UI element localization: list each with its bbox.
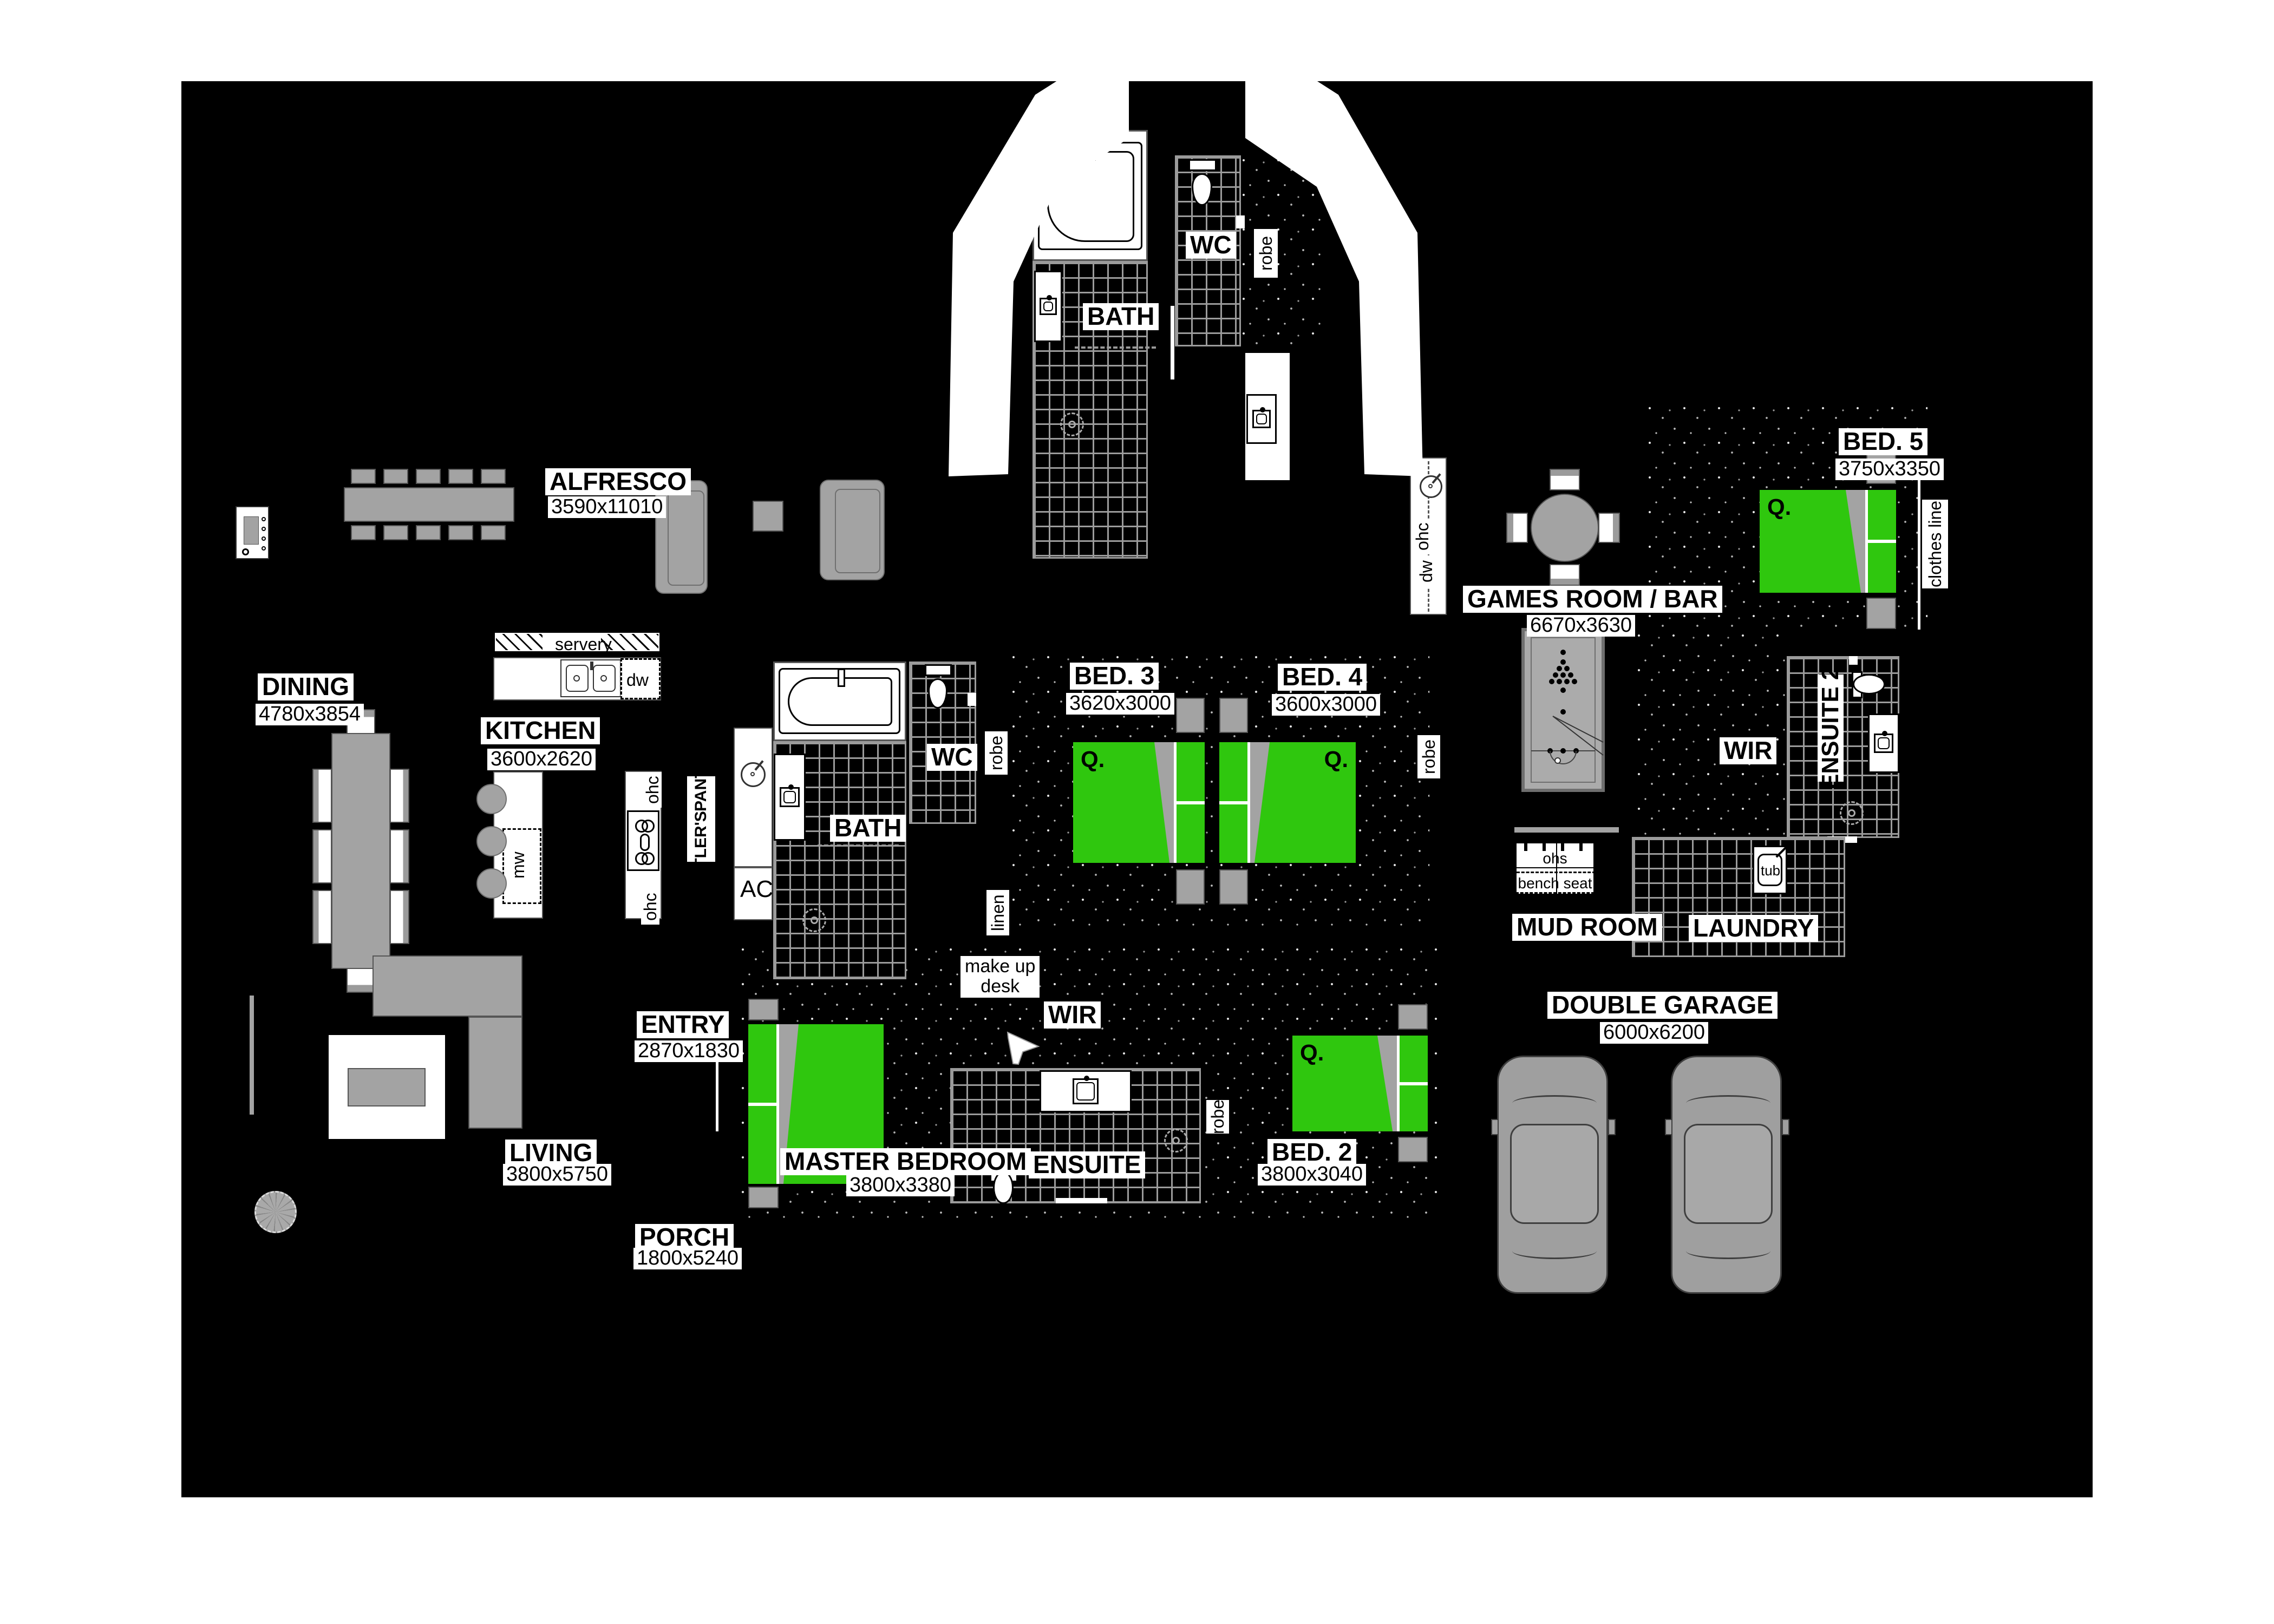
room-dims-entry: 2870x1830	[635, 1040, 743, 1062]
room-label-dining: DINING	[258, 673, 354, 700]
pool-table	[1523, 630, 1603, 790]
room-label-bed2: BED. 2	[1267, 1139, 1356, 1166]
vertical-label-robe: robe	[1206, 1100, 1229, 1134]
vertical-label-mw: mw	[509, 844, 527, 886]
room-dims-alfresco: 3590x11010	[548, 496, 666, 518]
vertical-label-clothes_line: clothes line	[1922, 500, 1948, 588]
vertical-label-linen: linen	[986, 890, 1009, 935]
butlers-line1: BUTLER'S	[692, 811, 711, 892]
make-up-desk-label: make updesk	[960, 956, 1040, 998]
butlers-line2: PANTRY	[692, 746, 711, 811]
vertical-label-robe: robe	[1417, 735, 1440, 778]
room-label-master: MASTER BEDROOM	[780, 1148, 1031, 1175]
room-dims-dining: 4780x3854	[256, 704, 364, 725]
room-label-laundry: LAUNDRY	[1689, 915, 1818, 942]
vertical-label-dw: dw	[1417, 555, 1435, 588]
room-dims-garage: 6000x6200	[1600, 1022, 1708, 1044]
room-label-wir_m: WIR	[1044, 1001, 1101, 1029]
room-label-ensuite_m: ENSUITE	[1029, 1151, 1145, 1178]
vertical-label-robe: robe	[985, 731, 1008, 775]
floor-plan-canvas: Q.tubohsbench seatQ.Q.K.Q. ALFRESCO3590x…	[0, 0, 2274, 1624]
room-label-mudroom: MUD ROOM	[1512, 914, 1662, 941]
room-label-games: GAMES ROOM / BAR	[1463, 586, 1722, 613]
room-dims-bed5: 3750x3350	[1835, 459, 1944, 480]
text-label-servery: servery	[555, 634, 612, 654]
vertical-label-ensuite2: ENSUITE 2	[1818, 675, 1844, 782]
room-dims-master: 3800x3380	[846, 1175, 955, 1196]
text-label-dw: dw	[626, 670, 649, 690]
vertical-label-robe: robe	[1254, 229, 1278, 278]
room-dims-bed4: 3600x3000	[1272, 694, 1380, 716]
room-label-bed3: BED. 3	[1070, 663, 1159, 690]
room-label-bed4: BED. 4	[1278, 664, 1367, 691]
room-dims-kitchen: 3600x2620	[487, 749, 596, 770]
make-up-line1: make up	[965, 957, 1035, 977]
room-label-wc_top: WC	[1186, 232, 1236, 259]
room-label-bath_top: BATH	[1083, 303, 1159, 330]
room-dims-bed3: 3620x3000	[1066, 693, 1174, 715]
vertical-label-butlers-pantry: BUTLER'SPANTRY	[687, 776, 715, 862]
room-label-garage: DOUBLE GARAGE	[1547, 992, 1778, 1019]
room-dims-bed2: 3800x3040	[1258, 1164, 1366, 1186]
vertical-label-ohc: ohc	[641, 889, 659, 925]
room-dims-porch: 1800x5240	[633, 1248, 742, 1269]
room-label-bed5: BED. 5	[1839, 428, 1927, 455]
plan-vector-layer	[0, 0, 2274, 1624]
room-label-bath_mid: BATH	[830, 815, 906, 842]
room-dims-living: 3800x5750	[503, 1164, 611, 1186]
mouse-cursor-icon	[1008, 1032, 1038, 1064]
vertical-label-ohc: ohc	[643, 772, 662, 808]
room-label-wir: WIR	[1720, 737, 1776, 764]
room-label-wc_mid: WC	[927, 744, 977, 771]
turret-roof-left	[949, 35, 1129, 476]
room-label-alfresco: ALFRESCO	[545, 468, 691, 495]
room-dims-games: 6670x3630	[1527, 615, 1635, 637]
vertical-label-ohc: ohc	[1413, 519, 1432, 554]
text-label-ac: AC	[740, 876, 773, 903]
room-label-kitchen: KITCHEN	[481, 717, 600, 744]
make-up-line2: desk	[965, 977, 1035, 997]
room-label-entry: ENTRY	[637, 1011, 729, 1038]
